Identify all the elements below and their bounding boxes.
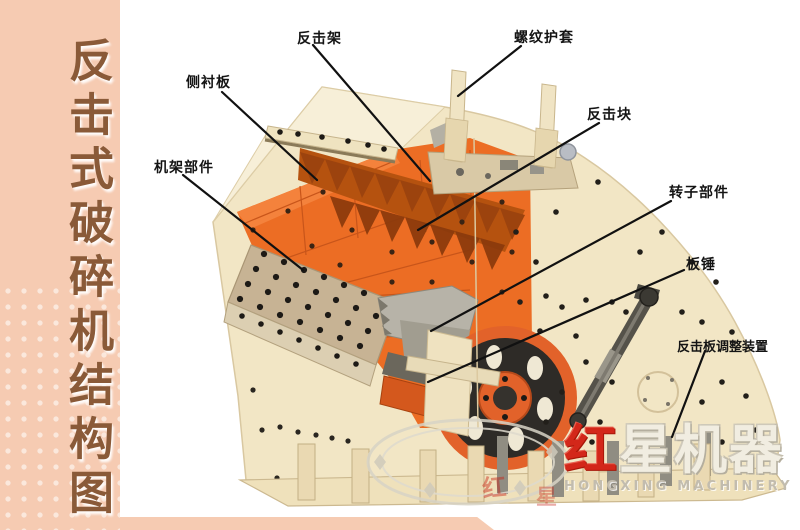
logo-english: HONGXING MACHINERY [564, 480, 800, 493]
faint-watermark-char-1: 红 [480, 467, 508, 504]
label-adjuster: 反击板调整装置 [677, 336, 768, 355]
label-side-liner: 侧衬板 [186, 72, 231, 92]
infographic-impact-crusher: 反击架 螺纹护套 侧衬板 机架部件 反击块 转子部件 板锤 反击板调整装置 红 … [0, 0, 800, 530]
logo-chars-light: 星机器 [619, 420, 784, 481]
label-frame-parts: 机架部件 [154, 157, 214, 177]
hongxing-logo: 红星机器 HONGXING MACHINERY [564, 424, 800, 493]
label-impact-frame: 反击架 [297, 28, 342, 48]
label-thread-sleeve: 螺纹护套 [514, 27, 574, 47]
bottom-accent-strip [120, 517, 494, 530]
label-impact-block: 反击块 [587, 104, 632, 124]
label-blow-bar: 板锤 [686, 254, 716, 274]
leader-thread-sleeve [458, 46, 521, 96]
label-rotor-parts: 转子部件 [669, 182, 729, 202]
title-sidebar: 反击式破碎机结构图 [0, 0, 120, 530]
logo-char-red: 红 [564, 420, 619, 481]
faint-watermark-char-2: 星 [536, 481, 557, 511]
page-title: 反击式破碎机结构图 [0, 0, 120, 530]
logo-chinese: 红星机器 [564, 424, 800, 477]
